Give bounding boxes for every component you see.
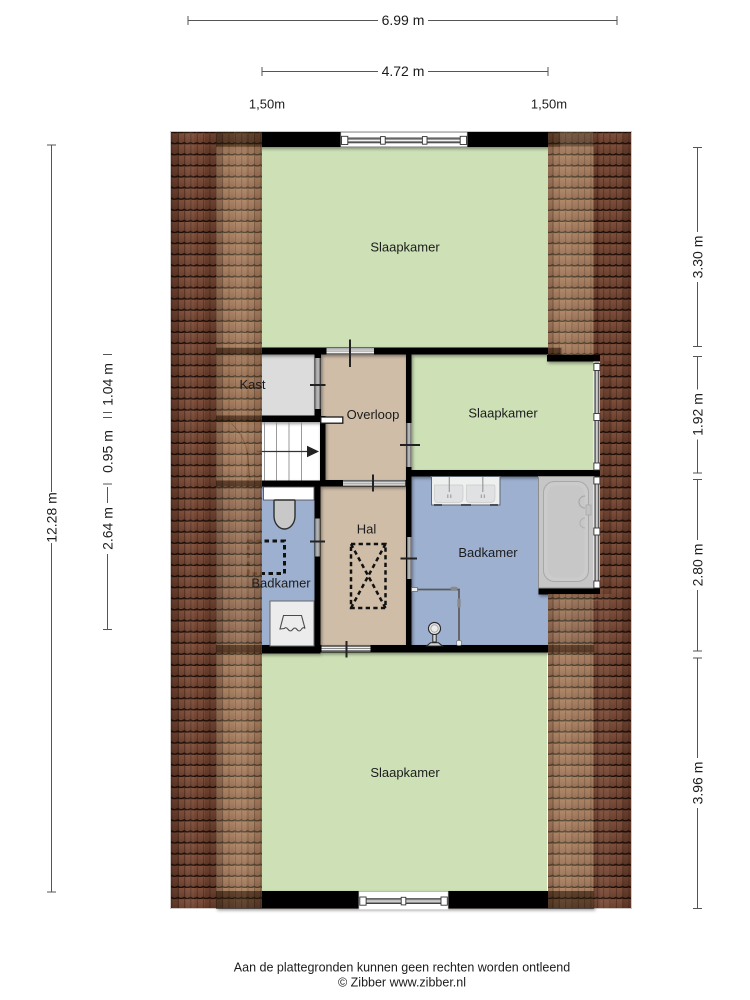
- svg-text:1,50m: 1,50m: [249, 97, 285, 112]
- svg-text:6.99 m: 6.99 m: [382, 12, 425, 28]
- svg-text:2.64 m: 2.64 m: [100, 507, 116, 550]
- svg-text:Badkamer: Badkamer: [458, 545, 518, 560]
- svg-text:© Zibber www.zibber.nl: © Zibber www.zibber.nl: [338, 976, 466, 990]
- svg-text:1.92 m: 1.92 m: [690, 393, 706, 436]
- svg-text:0.95 m: 0.95 m: [100, 430, 116, 473]
- svg-text:1.04 m: 1.04 m: [100, 363, 116, 406]
- svg-text:Slaapkamer: Slaapkamer: [370, 765, 440, 780]
- svg-text:12.28 m: 12.28 m: [44, 492, 60, 543]
- svg-text:3.96 m: 3.96 m: [690, 762, 706, 805]
- svg-text:Hal: Hal: [357, 522, 377, 537]
- svg-text:Slaapkamer: Slaapkamer: [468, 406, 538, 421]
- svg-text:Badkamer: Badkamer: [251, 576, 311, 591]
- svg-text:2.80 m: 2.80 m: [690, 544, 706, 587]
- svg-text:Overloop: Overloop: [347, 407, 400, 422]
- svg-text:4.72 m: 4.72 m: [382, 63, 425, 79]
- svg-text:Aan de plattegronden kunnen ge: Aan de plattegronden kunnen geen rechten…: [234, 961, 570, 975]
- svg-text:1,50m: 1,50m: [531, 97, 567, 112]
- svg-text:Kast: Kast: [239, 377, 265, 392]
- svg-text:Slaapkamer: Slaapkamer: [370, 240, 440, 255]
- svg-text:3.30 m: 3.30 m: [690, 236, 706, 279]
